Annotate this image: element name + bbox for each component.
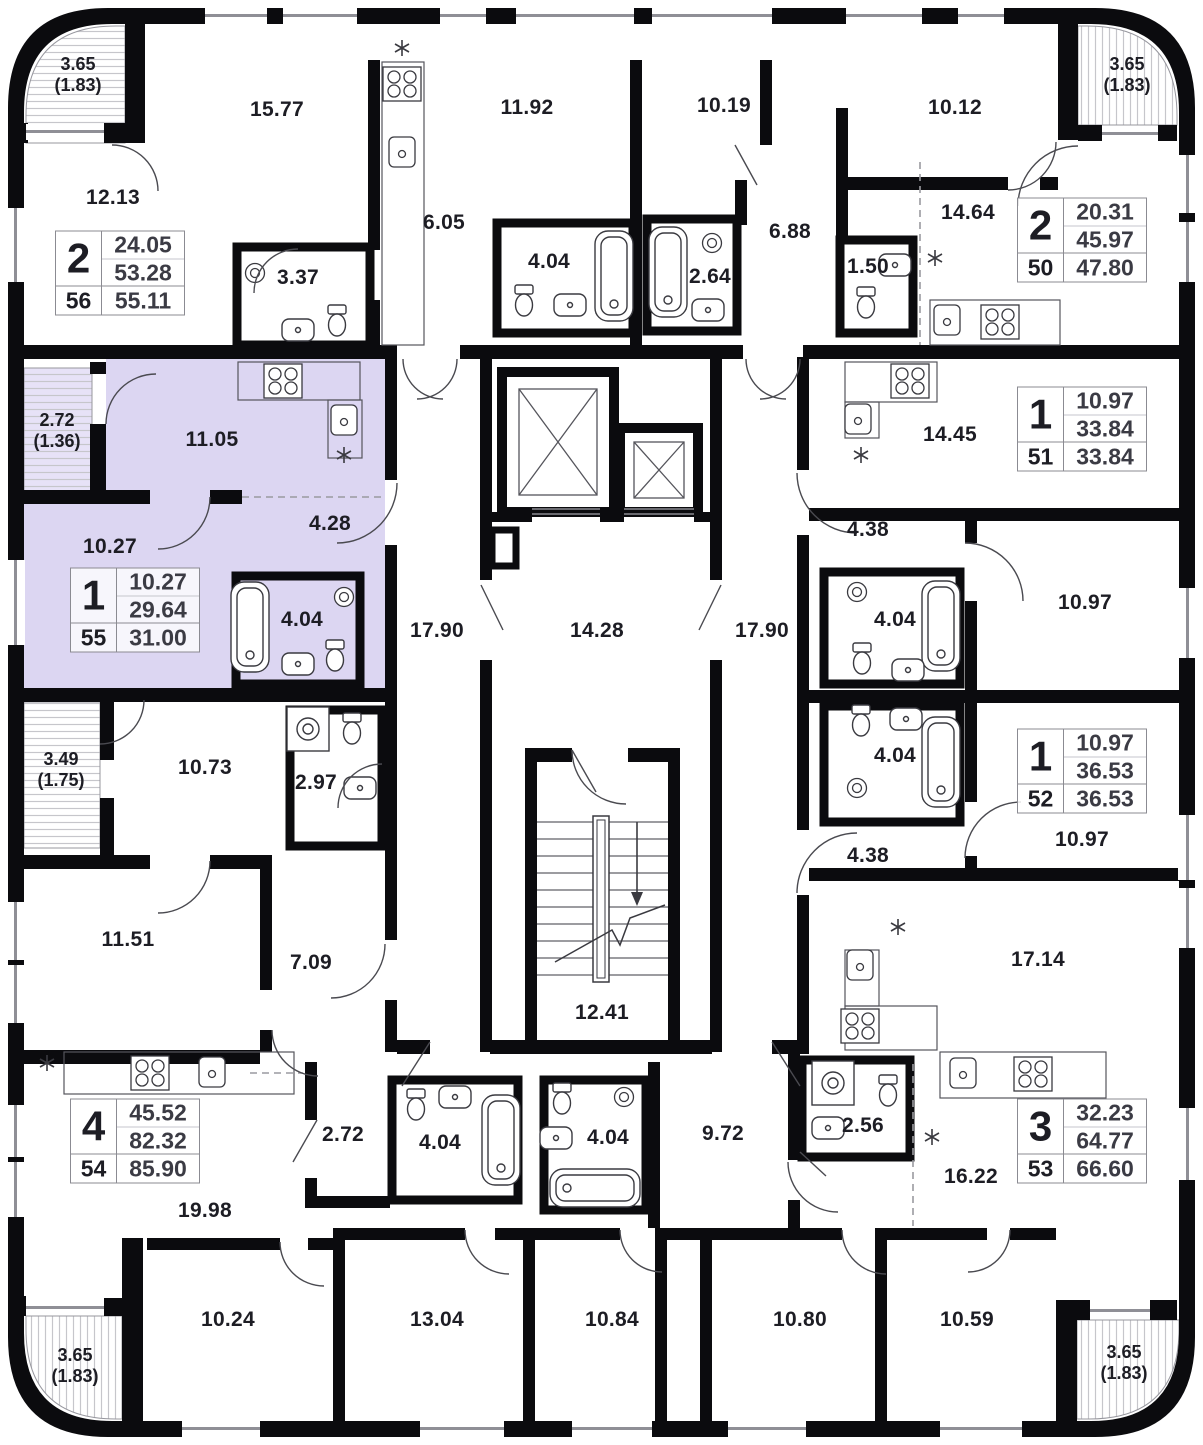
apartment-area: 53.28 [102,259,184,286]
apartment-area: 82.32 [117,1127,199,1154]
room-area-label: 14.28 [570,619,624,643]
room-area-label: 11.92 [501,96,554,120]
balcony-area: 3.65 [51,1345,98,1366]
room-area-label: 14.45 [923,423,977,447]
room-area-label: 16.22 [944,1165,998,1189]
balcony-area: 3.65 [1100,1342,1147,1363]
room-area-label: 6.05 [423,211,465,235]
balcony-reduced-area: (1.83) [1100,1363,1147,1384]
balcony-area-label: 3.65 (1.83) [54,54,101,96]
room-area-label: 10.27 [83,535,137,559]
apartment-living-area: 10.27 [117,569,199,596]
room-area-label: 2.97 [295,771,337,795]
floor-plan: 15.7711.9210.1910.1212.136.053.374.042.6… [0,0,1203,1445]
balcony-area: 3.49 [37,749,84,770]
room-area-label: 4.04 [587,1126,629,1150]
apartment-area: 36.53 [1064,757,1146,784]
room-area-label: 9.72 [702,1122,744,1146]
apartment-total-area: 36.53 [1064,784,1146,813]
apartment-total-area: 33.84 [1064,442,1146,471]
room-area-label: 4.28 [309,512,351,536]
apartment-rooms-count: 3 [1018,1100,1064,1154]
apartment-area: 33.84 [1064,415,1146,442]
room-area-label: 14.64 [941,201,995,225]
room-area-label: 10.97 [1058,591,1112,615]
apartment-rooms-count: 1 [1018,388,1064,442]
apartment-rooms-count: 4 [71,1100,117,1154]
apartment-total-area: 31.00 [117,623,199,652]
balcony-area-label: 3.65 (1.83) [1103,54,1150,96]
room-area-label: 10.24 [201,1308,255,1332]
room-area-label: 4.04 [874,608,916,632]
apartment-number: 52 [1018,784,1064,813]
apartment-total-area: 66.60 [1064,1154,1146,1183]
apartment-rooms-count: 1 [1018,730,1064,784]
balcony-reduced-area: (1.83) [1103,75,1150,96]
room-area-label: 10.73 [178,756,232,780]
room-area-label: 4.38 [847,518,889,542]
apartment-card[interactable]: 3 32.23 64.77 53 66.60 [1017,1099,1147,1184]
apartment-number: 51 [1018,442,1064,471]
apartment-number: 53 [1018,1154,1064,1183]
balcony-area: 3.65 [1103,54,1150,75]
room-area-label: 11.05 [186,428,239,452]
room-area-label: 3.37 [277,266,319,290]
apartment-number: 55 [71,623,117,652]
balcony-reduced-area: (1.83) [54,75,101,96]
room-area-label: 19.98 [178,1199,232,1223]
room-area-label: 12.41 [575,1001,629,1025]
room-area-label: 7.09 [290,951,332,975]
apartment-total-area: 85.90 [117,1154,199,1183]
balcony-area-label: 3.65 (1.83) [51,1345,98,1387]
labels-layer: 15.7711.9210.1910.1212.136.053.374.042.6… [0,0,1203,1445]
room-area-label: 15.77 [250,98,304,122]
room-area-label: 12.13 [86,186,140,210]
room-area-label: 2.72 [322,1123,364,1147]
apartment-card[interactable]: 2 20.31 45.97 50 47.80 [1017,198,1147,283]
room-area-label: 13.04 [410,1308,464,1332]
apartment-area: 64.77 [1064,1127,1146,1154]
apartment-total-area: 47.80 [1064,253,1146,282]
apartment-living-area: 24.05 [102,232,184,259]
apartment-living-area: 45.52 [117,1100,199,1127]
apartment-area: 29.64 [117,596,199,623]
room-area-label: 10.19 [697,94,751,118]
apartment-living-area: 32.23 [1064,1100,1146,1127]
room-area-label: 6.88 [769,220,811,244]
balcony-reduced-area: (1.83) [51,1366,98,1387]
balcony-area-label: 3.65 (1.83) [1100,1342,1147,1384]
room-area-label: 11.51 [102,928,155,952]
room-area-label: 17.90 [735,619,789,643]
room-area-label: 4.04 [281,608,323,632]
apartment-area: 45.97 [1064,226,1146,253]
apartment-rooms-count: 1 [71,569,117,623]
apartment-rooms-count: 2 [56,232,102,286]
apartment-card[interactable]: 1 10.97 36.53 52 36.53 [1017,729,1147,814]
balcony-reduced-area: (1.36) [33,431,80,452]
room-area-label: 17.90 [410,619,464,643]
apartment-card[interactable]: 2 24.05 53.28 56 55.11 [55,231,185,316]
room-area-label: 10.84 [585,1308,639,1332]
apartment-rooms-count: 2 [1018,199,1064,253]
balcony-area: 2.72 [33,410,80,431]
room-area-label: 10.12 [928,96,982,120]
apartment-number: 54 [71,1154,117,1183]
apartment-living-area: 10.97 [1064,730,1146,757]
balcony-reduced-area: (1.75) [37,770,84,791]
room-area-label: 2.64 [689,265,731,289]
balcony-area-label: 3.49 (1.75) [37,749,84,791]
room-area-label: 10.97 [1055,828,1109,852]
room-area-label: 2.56 [842,1114,884,1138]
room-area-label: 4.04 [419,1131,461,1155]
balcony-area: 3.65 [54,54,101,75]
room-area-label: 10.80 [773,1308,827,1332]
apartment-living-area: 20.31 [1064,199,1146,226]
room-area-label: 17.14 [1011,948,1065,972]
room-area-label: 4.04 [528,250,570,274]
apartment-living-area: 10.97 [1064,388,1146,415]
room-area-label: 4.38 [847,844,889,868]
room-area-label: 4.04 [874,744,916,768]
room-area-label: 10.59 [940,1308,994,1332]
apartment-number: 50 [1018,253,1064,282]
balcony-area-label: 2.72 (1.36) [33,410,80,452]
apartment-card[interactable]: 1 10.97 33.84 51 33.84 [1017,387,1147,472]
apartment-card[interactable]: 1 10.27 29.64 55 31.00 [70,568,200,653]
apartment-total-area: 55.11 [102,286,184,315]
apartment-card[interactable]: 4 45.52 82.32 54 85.90 [70,1099,200,1184]
apartment-number: 56 [56,286,102,315]
room-area-label: 1.50 [847,255,889,279]
